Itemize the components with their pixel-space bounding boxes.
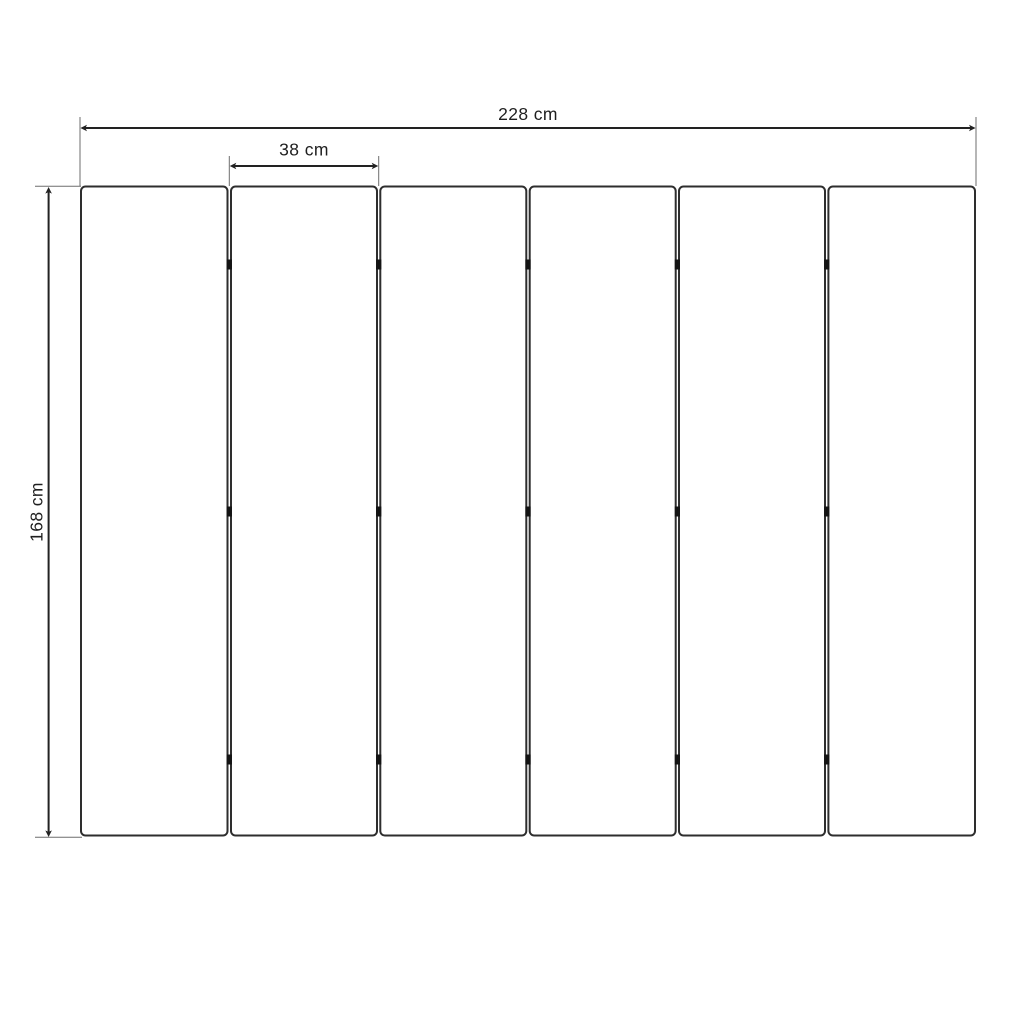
svg-text:228 cm: 228 cm bbox=[498, 104, 558, 124]
svg-text:168 cm: 168 cm bbox=[27, 482, 47, 542]
svg-text:38 cm: 38 cm bbox=[279, 140, 329, 160]
